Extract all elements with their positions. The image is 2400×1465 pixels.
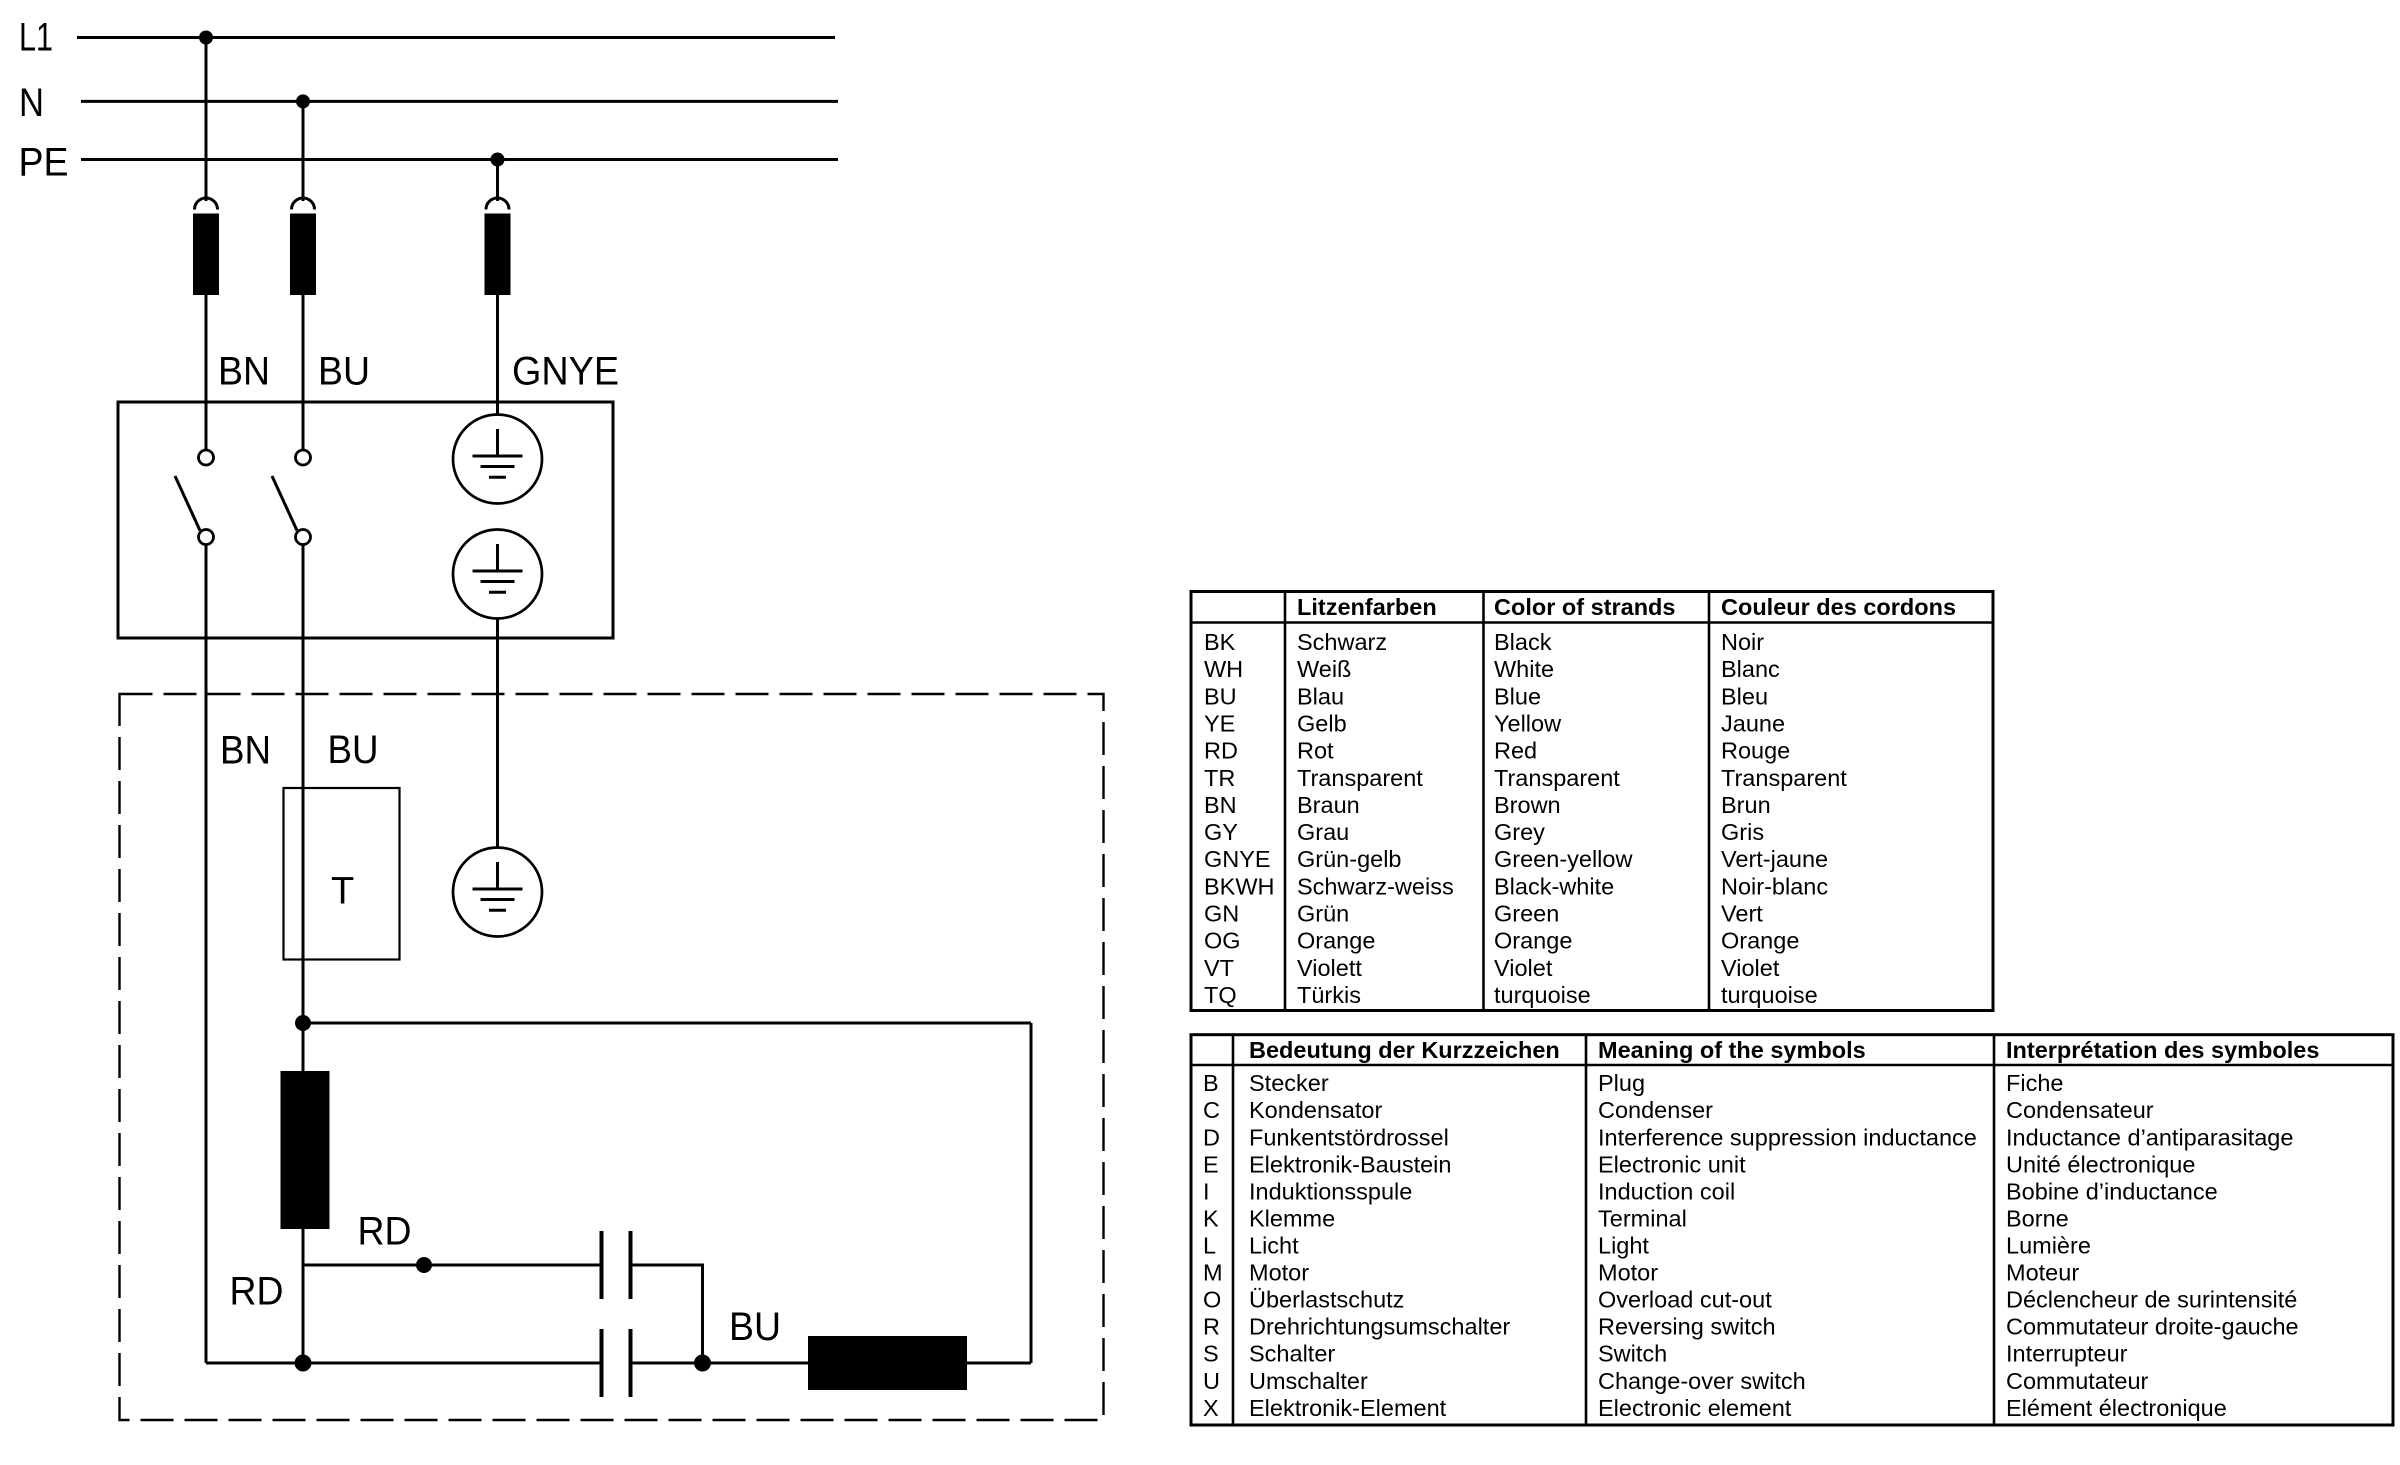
svg-text:Schwarz: Schwarz <box>1297 629 1387 655</box>
svg-text:Unité électronique: Unité électronique <box>2006 1151 2195 1177</box>
svg-text:BK: BK <box>1204 629 1236 655</box>
svg-text:GNYE: GNYE <box>1204 846 1271 872</box>
svg-text:Black-white: Black-white <box>1494 873 1614 899</box>
svg-text:T: T <box>331 871 354 913</box>
svg-text:turquoise: turquoise <box>1721 982 1818 1008</box>
svg-text:Stecker: Stecker <box>1249 1070 1329 1096</box>
svg-text:BU: BU <box>1204 683 1237 709</box>
svg-text:Meaning of the symbols: Meaning of the symbols <box>1598 1037 1866 1063</box>
svg-text:Fiche: Fiche <box>2006 1070 2063 1096</box>
svg-text:Blau: Blau <box>1297 683 1344 709</box>
svg-text:Umschalter: Umschalter <box>1249 1368 1368 1394</box>
svg-text:Blanc: Blanc <box>1721 656 1780 682</box>
svg-text:Vert-jaune: Vert-jaune <box>1721 846 1828 872</box>
svg-text:VT: VT <box>1204 955 1234 981</box>
svg-text:Violet: Violet <box>1721 955 1780 981</box>
svg-text:Violett: Violett <box>1297 955 1362 981</box>
svg-text:Blue: Blue <box>1494 683 1541 709</box>
svg-text:Bedeutung der Kurzzeichen: Bedeutung der Kurzzeichen <box>1249 1037 1560 1063</box>
svg-text:B: B <box>1203 1070 1219 1096</box>
svg-text:Color of strands: Color of strands <box>1494 594 1675 620</box>
svg-text:C: C <box>1203 1097 1220 1123</box>
svg-text:Jaune: Jaune <box>1721 711 1785 737</box>
svg-text:Orange: Orange <box>1494 928 1572 954</box>
svg-text:GY: GY <box>1204 819 1238 845</box>
svg-text:Gelb: Gelb <box>1297 711 1347 737</box>
svg-text:Couleur des cordons: Couleur des cordons <box>1721 594 1956 620</box>
svg-text:Weiß: Weiß <box>1297 656 1351 682</box>
svg-text:Condensateur: Condensateur <box>2006 1097 2154 1123</box>
svg-text:RD: RD <box>230 1270 284 1314</box>
svg-text:Interrupteur: Interrupteur <box>2006 1341 2128 1367</box>
svg-text:Transparent: Transparent <box>1494 765 1620 791</box>
svg-text:Induktionsspule: Induktionsspule <box>1249 1178 1412 1204</box>
svg-text:Déclencheur de surintensité: Déclencheur de surintensité <box>2006 1287 2297 1313</box>
svg-text:Electronic unit: Electronic unit <box>1598 1151 1746 1177</box>
svg-text:Interference suppression induc: Interference suppression inductance <box>1598 1124 1977 1150</box>
svg-text:Grau: Grau <box>1297 819 1349 845</box>
svg-text:OG: OG <box>1204 928 1241 954</box>
svg-text:Overload cut-out: Overload cut-out <box>1598 1287 1772 1313</box>
svg-text:Orange: Orange <box>1721 928 1799 954</box>
svg-text:Orange: Orange <box>1297 928 1375 954</box>
svg-text:TR: TR <box>1204 765 1235 791</box>
svg-text:Braun: Braun <box>1297 792 1360 818</box>
svg-text:turquoise: turquoise <box>1494 982 1591 1008</box>
svg-text:Commutateur droite-gauche: Commutateur droite-gauche <box>2006 1314 2299 1340</box>
svg-text:BU: BU <box>318 350 370 394</box>
svg-text:I: I <box>1203 1178 1210 1204</box>
svg-text:Rouge: Rouge <box>1721 738 1790 764</box>
svg-text:O: O <box>1203 1287 1221 1313</box>
svg-text:Transparent: Transparent <box>1721 765 1847 791</box>
svg-text:Terminal: Terminal <box>1598 1206 1687 1232</box>
svg-text:R: R <box>1203 1314 1220 1340</box>
svg-text:Brown: Brown <box>1494 792 1561 818</box>
svg-text:GN: GN <box>1204 901 1239 927</box>
svg-text:Drehrichtungsumschalter: Drehrichtungsumschalter <box>1249 1314 1510 1340</box>
svg-text:Borne: Borne <box>2006 1206 2069 1232</box>
svg-text:U: U <box>1203 1368 1220 1394</box>
svg-text:RD: RD <box>1204 738 1238 764</box>
svg-text:Light: Light <box>1598 1233 1649 1259</box>
svg-text:BKWH: BKWH <box>1204 873 1275 899</box>
svg-text:Grey: Grey <box>1494 819 1545 845</box>
svg-text:K: K <box>1203 1206 1219 1232</box>
svg-text:Elektronik-Element: Elektronik-Element <box>1249 1395 1447 1421</box>
svg-text:N: N <box>19 81 44 125</box>
svg-text:Black: Black <box>1494 629 1552 655</box>
svg-text:Reversing switch: Reversing switch <box>1598 1314 1776 1340</box>
svg-text:Schwarz-weiss: Schwarz-weiss <box>1297 873 1454 899</box>
svg-text:Commutateur: Commutateur <box>2006 1368 2149 1394</box>
svg-text:Switch: Switch <box>1598 1341 1667 1367</box>
svg-text:RD: RD <box>358 1210 412 1254</box>
svg-text:Noir-blanc: Noir-blanc <box>1721 873 1828 899</box>
svg-text:Plug: Plug <box>1598 1070 1645 1096</box>
svg-text:M: M <box>1203 1260 1223 1286</box>
svg-text:Kondensator: Kondensator <box>1249 1097 1382 1123</box>
svg-text:Rot: Rot <box>1297 738 1334 764</box>
svg-text:Bobine d’inductance: Bobine d’inductance <box>2006 1178 2218 1204</box>
svg-text:Elément électronique: Elément électronique <box>2006 1395 2227 1421</box>
svg-text:Electronic element: Electronic element <box>1598 1395 1792 1421</box>
svg-text:Inductance d’antiparasitage: Inductance d’antiparasitage <box>2006 1124 2293 1150</box>
svg-text:Change-over switch: Change-over switch <box>1598 1368 1806 1394</box>
svg-text:Motor: Motor <box>1249 1260 1309 1286</box>
svg-text:Yellow: Yellow <box>1494 711 1562 737</box>
svg-text:Grün: Grün <box>1297 901 1349 927</box>
svg-text:Green-yellow: Green-yellow <box>1494 846 1633 872</box>
svg-text:X: X <box>1203 1395 1219 1421</box>
svg-text:E: E <box>1203 1151 1219 1177</box>
svg-text:BN: BN <box>220 729 271 773</box>
svg-text:GNYE: GNYE <box>512 350 619 394</box>
svg-text:Grün-gelb: Grün-gelb <box>1297 846 1402 872</box>
svg-text:L1: L1 <box>19 16 53 60</box>
svg-text:Brun: Brun <box>1721 792 1771 818</box>
svg-text:Schalter: Schalter <box>1249 1341 1335 1367</box>
svg-text:WH: WH <box>1204 656 1243 682</box>
svg-text:Elektronik-Baustein: Elektronik-Baustein <box>1249 1151 1451 1177</box>
svg-text:Überlastschutz: Überlastschutz <box>1249 1287 1404 1313</box>
svg-text:Türkis: Türkis <box>1297 982 1361 1008</box>
svg-text:YE: YE <box>1204 711 1235 737</box>
svg-text:Vert: Vert <box>1721 901 1763 927</box>
svg-text:Interprétation des symboles: Interprétation des symboles <box>2006 1037 2319 1063</box>
svg-text:Induction coil: Induction coil <box>1598 1178 1735 1204</box>
svg-text:BN: BN <box>218 350 270 394</box>
svg-text:Bleu: Bleu <box>1721 683 1768 709</box>
svg-text:Funkentstördrossel: Funkentstördrossel <box>1249 1124 1449 1150</box>
svg-text:BU: BU <box>729 1305 781 1349</box>
svg-text:Violet: Violet <box>1494 955 1553 981</box>
svg-text:Moteur: Moteur <box>2006 1260 2079 1286</box>
svg-text:Klemme: Klemme <box>1249 1206 1335 1232</box>
svg-text:Licht: Licht <box>1249 1233 1299 1259</box>
svg-text:Transparent: Transparent <box>1297 765 1423 791</box>
svg-text:D: D <box>1203 1124 1220 1150</box>
svg-text:PE: PE <box>19 141 69 185</box>
svg-text:Lumière: Lumière <box>2006 1233 2091 1259</box>
svg-text:L: L <box>1203 1233 1216 1259</box>
svg-text:TQ: TQ <box>1204 982 1237 1008</box>
svg-text:BU: BU <box>328 728 379 772</box>
svg-text:Red: Red <box>1494 738 1537 764</box>
svg-text:Green: Green <box>1494 901 1559 927</box>
svg-text:S: S <box>1203 1341 1219 1367</box>
svg-text:White: White <box>1494 656 1554 682</box>
svg-text:Noir: Noir <box>1721 629 1764 655</box>
svg-text:Motor: Motor <box>1598 1260 1658 1286</box>
svg-text:Litzenfarben: Litzenfarben <box>1297 594 1437 620</box>
svg-text:BN: BN <box>1204 792 1237 818</box>
svg-text:Condenser: Condenser <box>1598 1097 1713 1123</box>
svg-text:Gris: Gris <box>1721 819 1764 845</box>
